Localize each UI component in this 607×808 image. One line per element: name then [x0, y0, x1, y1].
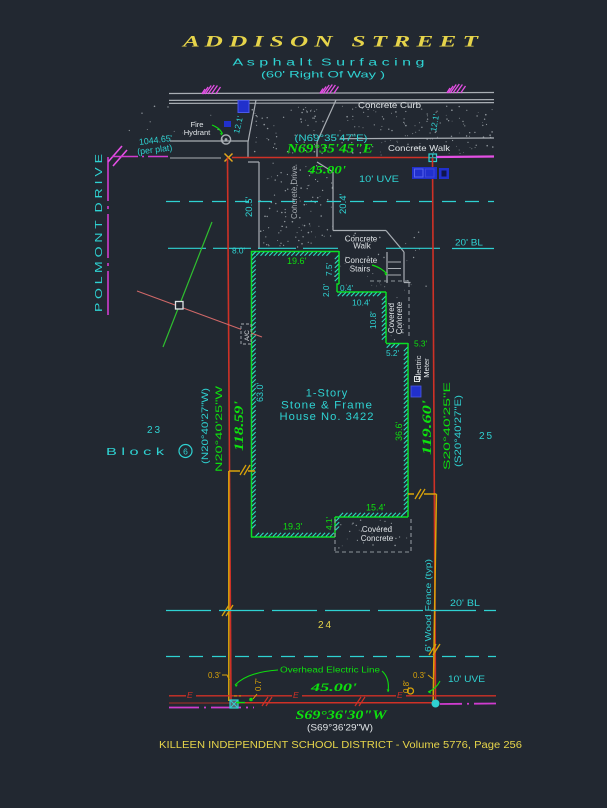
svg-text:20' BL: 20' BL: [455, 238, 483, 248]
svg-text:(N20°40'27"W): (N20°40'27"W): [200, 388, 210, 464]
svg-text:(S69°36'29"W): (S69°36'29"W): [307, 723, 373, 733]
svg-text:0.3': 0.3': [208, 671, 221, 680]
svg-text:15.4': 15.4': [366, 503, 386, 513]
svg-text:A D D I S O N S T R E E T: A D D I S O N S T R E E T: [181, 34, 480, 51]
svg-text:24: 24: [318, 620, 333, 631]
svg-text:House No. 3422: House No. 3422: [280, 411, 375, 423]
svg-text:Meter: Meter: [422, 358, 431, 378]
svg-text:36.6': 36.6': [394, 421, 404, 441]
svg-text:20' BL: 20' BL: [450, 598, 480, 608]
svg-text:5.2': 5.2': [386, 348, 400, 358]
svg-text:(S20°40'27"E): (S20°40'27"E): [453, 395, 463, 467]
svg-text:23: 23: [147, 425, 162, 436]
svg-text:19.3': 19.3': [283, 522, 303, 532]
svg-text:N20°40'25"W: N20°40'25"W: [214, 386, 225, 472]
svg-text:6' Wood Fence (typ): 6' Wood Fence (typ): [423, 559, 433, 652]
svg-text:Overhead Electric Line: Overhead Electric Line: [280, 666, 381, 675]
svg-text:6: 6: [183, 447, 188, 457]
svg-text:0.7': 0.7': [254, 678, 263, 691]
svg-text:P O L M O N T D R I V E: P O L M O N T D R I V E: [94, 154, 105, 312]
svg-text:63.0': 63.0': [255, 382, 265, 402]
svg-text:10.4': 10.4': [352, 298, 371, 308]
svg-text:0.4': 0.4': [340, 283, 354, 293]
svg-text:Concrete: Concrete: [361, 534, 394, 543]
svg-text:5.3': 5.3': [414, 339, 428, 349]
svg-text:Stairs: Stairs: [350, 265, 370, 274]
svg-text:7.5': 7.5': [324, 262, 334, 276]
svg-text:Covered: Covered: [362, 525, 392, 534]
svg-text:Stone & Frame: Stone & Frame: [281, 400, 373, 412]
svg-text:25: 25: [479, 431, 494, 442]
svg-text:Concrete Curb: Concrete Curb: [358, 101, 422, 110]
svg-text:10' UVE: 10' UVE: [359, 174, 399, 184]
svg-text:(60' Right Of Way ): (60' Right Of Way ): [261, 70, 385, 81]
svg-text:0.3': 0.3': [413, 671, 426, 680]
svg-text:2.0': 2.0': [321, 283, 331, 297]
svg-text:0.8': 0.8': [402, 680, 411, 693]
svg-text:S69°36'30"W: S69°36'30"W: [296, 707, 389, 722]
svg-text:KILLEEN INDEPENDENT SCHOOL: KILLEEN INDEPENDENT SCHOOL DISTRICT - Vo…: [159, 740, 522, 751]
svg-text:20.5': 20.5': [244, 197, 255, 217]
svg-text:S20°40'25"E: S20°40'25"E: [442, 382, 453, 470]
svg-text:20.4': 20.4': [338, 194, 349, 214]
svg-text:Walk: Walk: [353, 242, 371, 251]
svg-text:4.1': 4.1': [324, 516, 334, 530]
svg-text:10' UVE: 10' UVE: [448, 674, 485, 684]
svg-text:118.59': 118.59': [231, 401, 246, 451]
svg-text:E: E: [187, 690, 193, 700]
svg-text:Concrete Walk: Concrete Walk: [388, 144, 451, 153]
svg-text:A/C: A/C: [244, 330, 251, 341]
svg-text:10.8': 10.8': [368, 311, 378, 329]
svg-text:Concrete Drive: Concrete Drive: [290, 166, 299, 219]
svg-text:19.6': 19.6': [287, 256, 307, 266]
svg-text:N69°35'45"E: N69°35'45"E: [286, 141, 374, 156]
svg-text:Concrete: Concrete: [395, 301, 404, 334]
svg-text:B l o c k: B l o c k: [106, 447, 166, 458]
svg-text:Hydrant: Hydrant: [184, 128, 211, 137]
svg-text:8.0': 8.0': [232, 246, 246, 256]
svg-text:E: E: [293, 690, 299, 700]
svg-text:119.60': 119.60': [419, 399, 434, 455]
svg-text:45.00': 45.00': [309, 680, 358, 694]
svg-text:A s p h a l t S u r f a c i n: A s p h a l t S u r f a c i n g: [233, 58, 425, 69]
svg-text:1-Story: 1-Story: [306, 388, 348, 400]
svg-text:45.00': 45.00': [307, 163, 347, 177]
